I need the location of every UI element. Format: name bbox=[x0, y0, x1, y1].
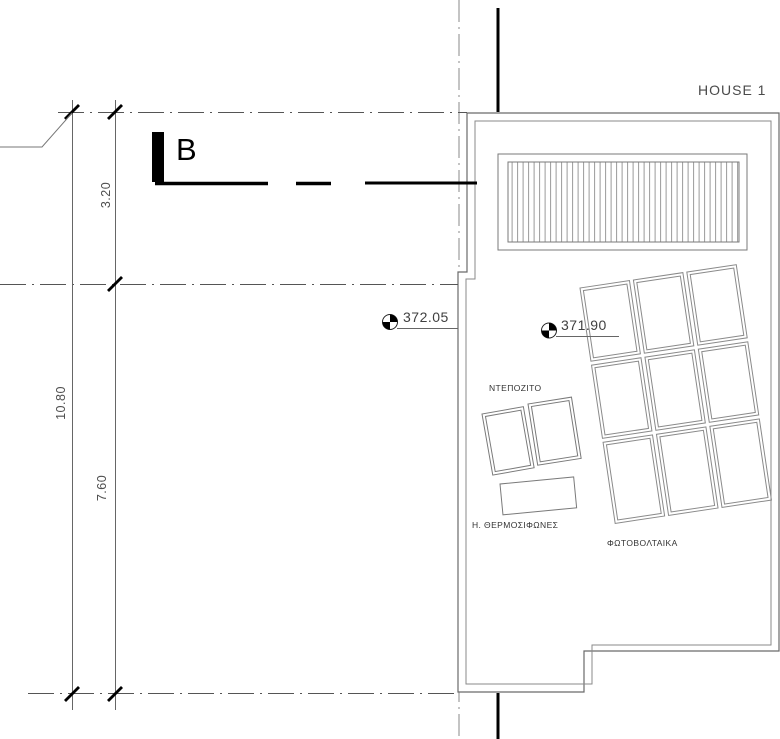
tank-label: ΝΤΕΠΟΖΙΤΟ bbox=[489, 383, 542, 393]
leader-line bbox=[0, 113, 72, 147]
dimension-ticks bbox=[65, 105, 122, 701]
roof-plan-drawing: HOUSE 1 B 3.20 10.80 7.60 372.05 371.90 … bbox=[0, 0, 780, 739]
dimension-lower: 7.60 bbox=[95, 460, 109, 516]
house-title: HOUSE 1 bbox=[698, 82, 760, 98]
skylight-hatch bbox=[498, 154, 747, 250]
extension-lines bbox=[0, 113, 467, 694]
elevation-value-right: 371.90 bbox=[561, 317, 607, 333]
dimension-total: 10.80 bbox=[54, 368, 68, 438]
section-label-b: B bbox=[176, 132, 197, 168]
plan-linework bbox=[0, 0, 780, 739]
photovoltaics-label: ΦΩΤΟΒΟΛΤΑΙΚΑ bbox=[607, 538, 678, 548]
water-heater-label: Η. ΘΕΡΜΟΣΙΦΩΝΕΣ bbox=[472, 520, 558, 530]
section-line-b bbox=[152, 8, 500, 739]
elevation-value-left: 372.05 bbox=[403, 309, 449, 325]
dimension-upper: 3.20 bbox=[99, 167, 113, 223]
